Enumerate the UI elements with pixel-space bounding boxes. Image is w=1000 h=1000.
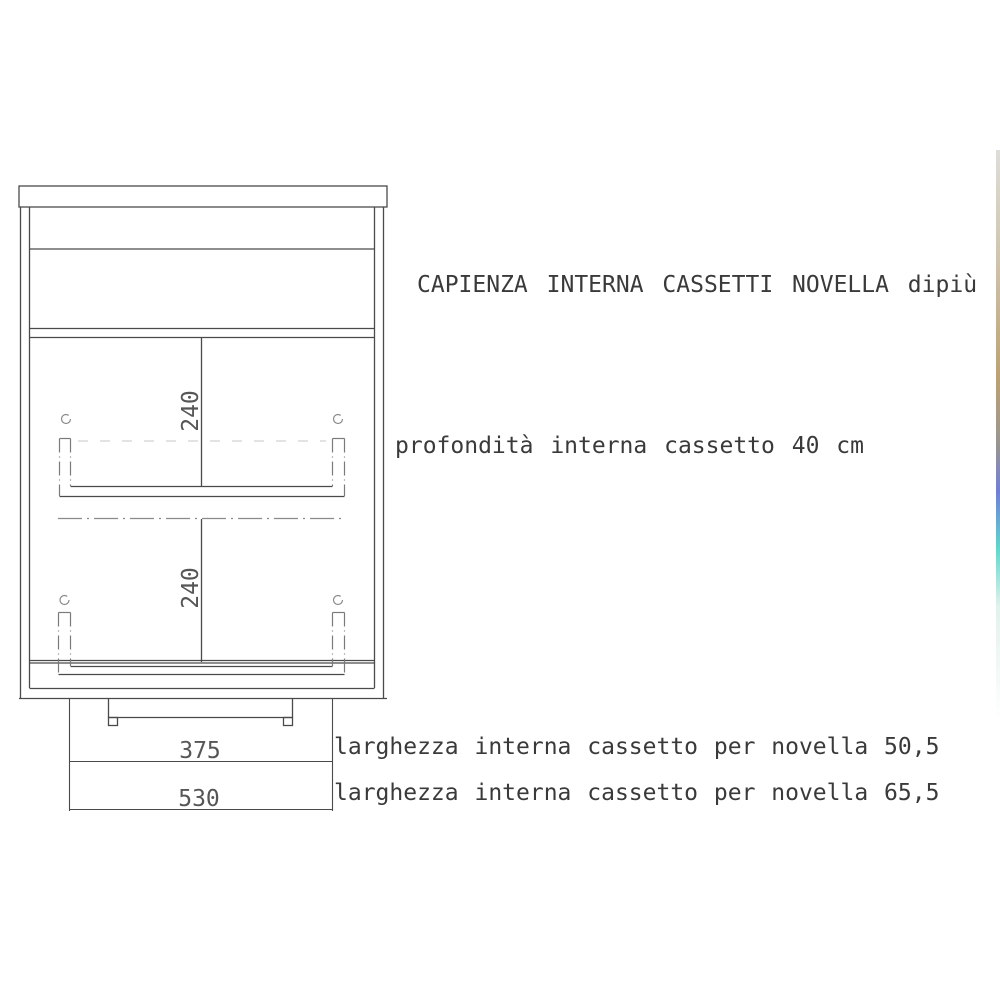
lower-left-hole: [60, 596, 69, 605]
width-annotation-1: larghezza interna cassetto per novella 5…: [334, 734, 939, 760]
cabinet-drawing: 240 240 375 530: [0, 0, 1000, 1000]
diagram-title: CAPIENZA INTERNA CASSETTI NOVELLA dipiù: [417, 272, 977, 298]
upper-left-hole: [62, 415, 71, 424]
worktop-outline: [19, 186, 387, 207]
lower-drawer-height-label: 240: [178, 567, 204, 609]
scanned-technical-diagram: 240 240 375 530 CAPIENZA INTERNA CASSETT…: [0, 0, 1000, 1000]
upper-right-hole: [334, 415, 343, 424]
right-foot: [284, 718, 293, 726]
outer-width-label: 530: [178, 786, 220, 812]
lower-right-hole: [334, 596, 343, 605]
inner-width-label: 375: [179, 738, 221, 764]
depth-annotation: profondità interna cassetto 40 cm: [395, 433, 864, 459]
upper-drawer-height-label: 240: [178, 390, 204, 432]
width-annotation-2: larghezza interna cassetto per novella 6…: [334, 780, 939, 806]
left-foot: [109, 718, 118, 726]
scan-edge-artifact: [996, 150, 1000, 720]
